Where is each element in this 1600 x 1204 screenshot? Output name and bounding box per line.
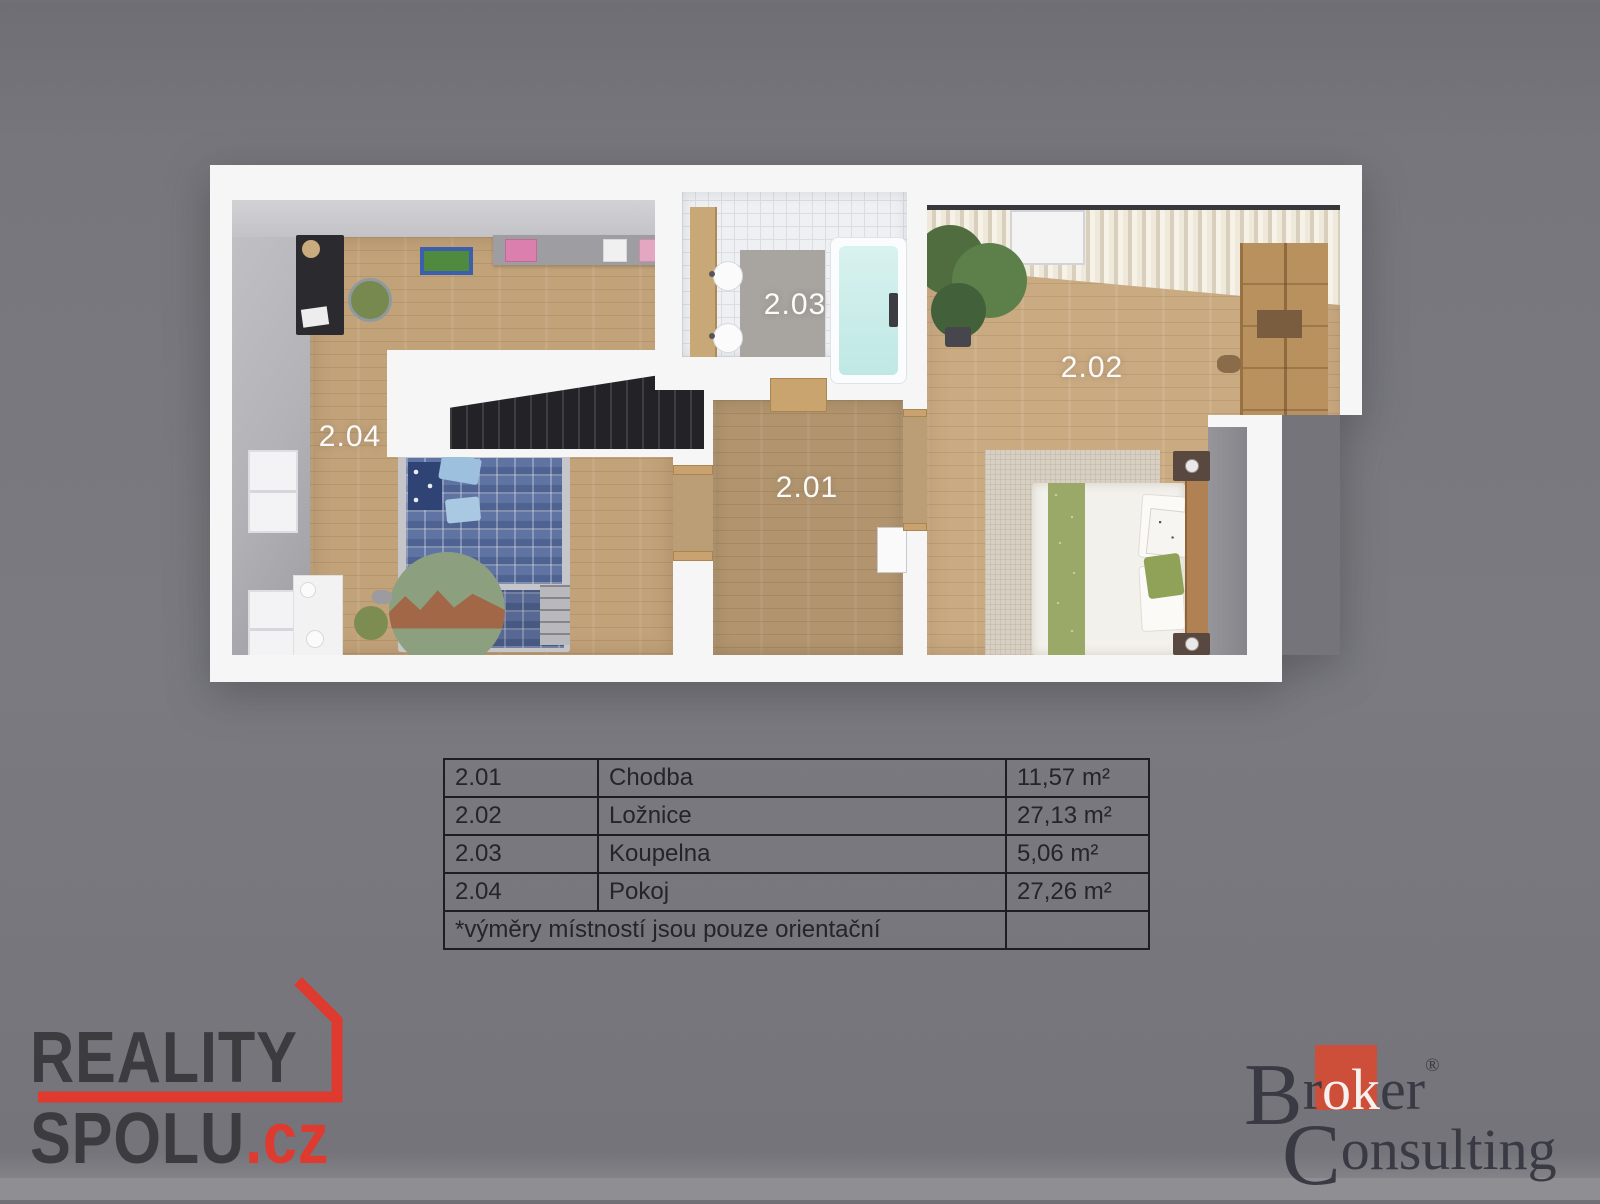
- wardrobe-niche-icon: [1257, 310, 1302, 338]
- consulting-initial: C: [1282, 1107, 1341, 1204]
- storage-box-icon: [505, 239, 537, 262]
- room204-top-wall: [232, 200, 673, 237]
- door-opening-201-202: [903, 415, 927, 525]
- registered-mark-icon: ®: [1425, 1055, 1439, 1076]
- room-label-201: 2.01: [776, 471, 838, 505]
- skylight-icon: [1010, 210, 1085, 265]
- toy-icon: [372, 590, 392, 604]
- room-id-cell: 2.04: [444, 873, 598, 911]
- door-jamb-icon: [673, 465, 713, 475]
- bathtub-icon: [830, 237, 907, 384]
- basket-icon: [1217, 355, 1241, 373]
- room-id-cell: 2.01: [444, 759, 598, 797]
- building-notch: [1282, 415, 1340, 655]
- door-opening-204-201: [673, 473, 713, 553]
- logo-spolu-text: SPOLU: [30, 1099, 245, 1179]
- logo-cz-suffix: .cz: [245, 1099, 329, 1179]
- stair-threshold-icon: [770, 378, 827, 412]
- room-name-cell: Pokoj: [598, 873, 1006, 911]
- bed-runner-icon: [1048, 483, 1085, 655]
- desk-chair-icon: [348, 278, 392, 322]
- open-door-leaf-icon: [877, 527, 907, 573]
- sink-icon: [713, 323, 743, 353]
- room-area-cell: 5,06 m²: [1006, 835, 1149, 873]
- floor-plan: 2.04 2.03 2.01 2.02: [210, 165, 1362, 682]
- sink-icon: [713, 261, 743, 291]
- desk-lamp-icon: [302, 240, 320, 258]
- hallway-floor: [713, 400, 903, 655]
- room-area-cell: 11,57 m²: [1006, 759, 1149, 797]
- storage-box-icon: [603, 239, 627, 262]
- room-chodba-201: [713, 400, 903, 655]
- door-jamb-icon: [903, 523, 927, 531]
- table-row: 2.01 Chodba 11,57 m²: [444, 759, 1149, 797]
- headboard-icon: [1185, 480, 1208, 655]
- table-row: 2.04 Pokoj 27,26 m²: [444, 873, 1149, 911]
- papers-icon: [301, 306, 329, 327]
- room-loznice-202: [927, 205, 1340, 655]
- pillow-icon: [1143, 553, 1184, 600]
- door-jamb-icon: [903, 409, 927, 417]
- consulting-word: Consulting: [1282, 1112, 1557, 1200]
- bathroom-floor: [682, 192, 907, 357]
- room-name-cell: Chodba: [598, 759, 1006, 797]
- curtain-rod-icon: [927, 205, 1340, 210]
- room-area-cell: 27,26 m²: [1006, 873, 1149, 911]
- logo-reality-word: REALITY: [30, 1022, 298, 1094]
- room-area-cell: 27,13 m²: [1006, 797, 1149, 835]
- bed-steps-icon: [540, 585, 570, 645]
- room-label-203: 2.03: [764, 288, 826, 322]
- consulting-letters: onsulting: [1341, 1117, 1557, 1182]
- play-mat-icon: [420, 247, 473, 275]
- clock-icon: [1185, 459, 1199, 473]
- reality-spolu-logo: REALITY SPOLU.cz: [30, 975, 410, 1185]
- accent-wall: [1208, 427, 1247, 655]
- faucet-icon: [709, 333, 715, 339]
- room-koupelna-203: [655, 165, 920, 390]
- room-name-cell: Ložnice: [598, 797, 1006, 835]
- room-label-204: 2.04: [319, 420, 381, 454]
- plant-pot-icon: [945, 327, 971, 347]
- pillow-icon: [445, 496, 481, 523]
- logo-spolu-word: SPOLU.cz: [30, 1103, 329, 1175]
- window-icon: [248, 450, 298, 533]
- pillow-icon: [1146, 508, 1191, 558]
- room-label-202: 2.02: [1061, 351, 1123, 385]
- table-row: 2.02 Ložnice 27,13 m²: [444, 797, 1149, 835]
- tabletop-item-icon: [306, 630, 324, 648]
- table-note: *výměry místností jsou pouze orientační: [444, 911, 1006, 949]
- table-row: 2.03 Koupelna 5,06 m²: [444, 835, 1149, 873]
- room-name-cell: Koupelna: [598, 835, 1006, 873]
- empty-cell: [1006, 911, 1149, 949]
- broker-consulting-logo: Broker® Consulting: [1230, 1030, 1600, 1180]
- clock-icon: [1185, 637, 1199, 651]
- room-id-cell: 2.03: [444, 835, 598, 873]
- table-note-row: *výměry místností jsou pouze orientační: [444, 911, 1149, 949]
- room-id-cell: 2.02: [444, 797, 598, 835]
- door-jamb-icon: [673, 551, 713, 561]
- pillow-icon: [408, 462, 442, 510]
- window-icon: [248, 590, 298, 655]
- tabletop-item-icon: [300, 582, 316, 598]
- bathtub-fixture-icon: [889, 293, 898, 327]
- stool-icon: [354, 606, 388, 640]
- page: { "page": { "background": "#74747a", "bo…: [0, 0, 1600, 1200]
- faucet-icon: [709, 271, 715, 277]
- room-area-table: 2.01 Chodba 11,57 m² 2.02 Ložnice 27,13 …: [443, 758, 1150, 950]
